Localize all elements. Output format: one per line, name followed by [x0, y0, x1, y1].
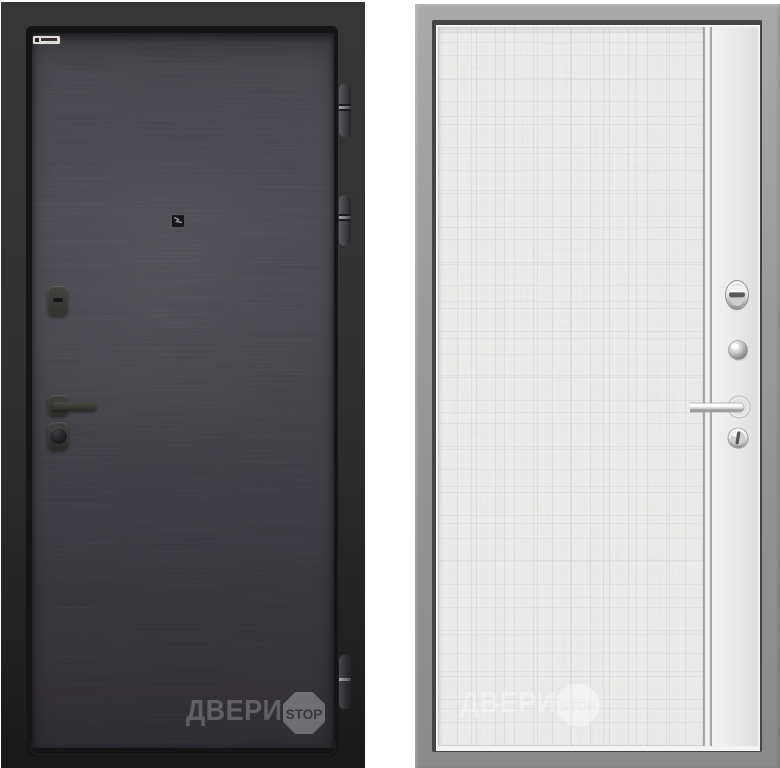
svg-text:STOP: STOP — [286, 707, 323, 722]
svg-text:STOP: STOP — [560, 699, 597, 714]
